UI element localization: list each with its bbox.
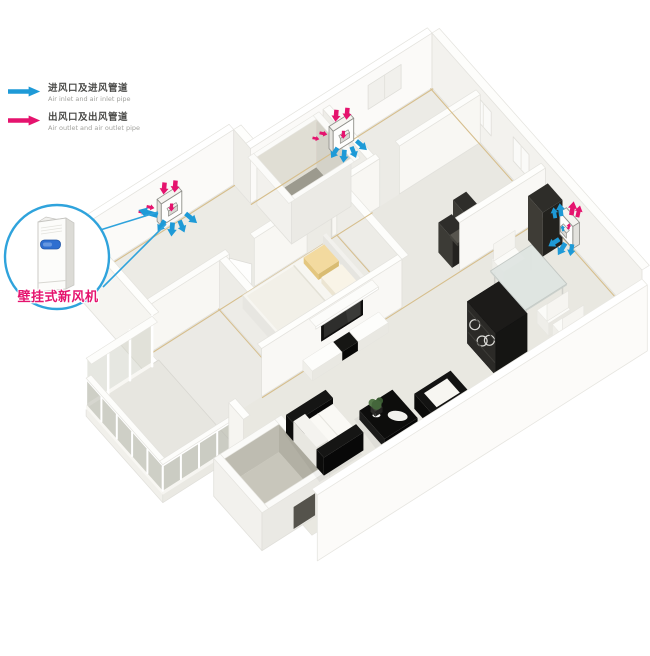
legend-inlet-label-en: Air inlet and air inlet pipe <box>48 95 131 103</box>
outlet-arrow-shape <box>8 116 40 126</box>
legend-outlet-label-en: Air outlet and air outlet pipe <box>48 124 140 132</box>
legend-outlet-label-zh: 出风口及出风管道 <box>48 113 140 124</box>
wall-mounted-unit-product <box>32 217 74 296</box>
callout-label: 壁挂式新风机 <box>6 286 110 305</box>
inlet-arrow-shape <box>8 87 40 97</box>
legend-outlet-row: 出风口及出风管道 Air outlet and air outlet pipe <box>8 113 140 132</box>
dark-cabinet <box>528 183 563 256</box>
outlet-arrow-icon <box>8 114 41 127</box>
inlet-arrow-icon <box>8 85 41 98</box>
legend-inlet-row: 进风口及进风管道 Air inlet and air inlet pipe <box>8 84 140 103</box>
legend: 进风口及进风管道 Air inlet and air inlet pipe 出风… <box>8 84 140 132</box>
legend-inlet-label-zh: 进风口及进风管道 <box>48 84 131 95</box>
stage: 进风口及进风管道 Air inlet and air inlet pipe 出风… <box>0 0 650 656</box>
